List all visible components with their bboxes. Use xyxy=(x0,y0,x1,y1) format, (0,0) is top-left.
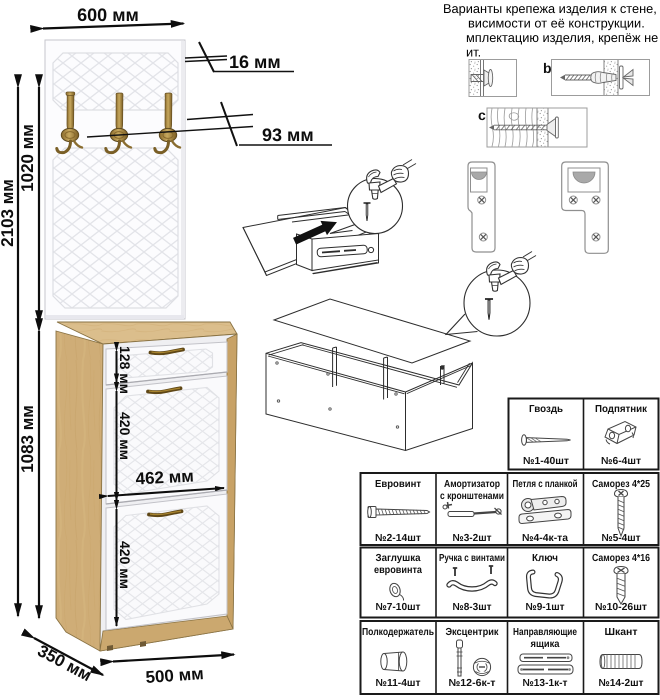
svg-text:420 мм: 420 мм xyxy=(117,541,133,589)
svg-text:Шкант: Шкант xyxy=(605,627,638,638)
svg-text:Ключ: Ключ xyxy=(532,553,558,564)
svg-text:висимости от её конструкции.: висимости от её конструкции. xyxy=(468,16,645,31)
svg-text:Петля с планкой: Петля с планкой xyxy=(513,479,578,490)
svg-text:Варианты крепежа изделия к сте: Варианты крепежа изделия к стене, xyxy=(443,1,657,16)
svg-text:ящика: ящика xyxy=(531,639,560,650)
svg-text:ит.: ит. xyxy=(466,45,481,60)
svg-text:№9-1шт: №9-1шт xyxy=(526,602,565,613)
svg-text:Заглушка: Заглушка xyxy=(376,553,421,564)
svg-text:№5-4шт: №5-4шт xyxy=(602,533,641,544)
svg-text:128 мм: 128 мм xyxy=(117,346,133,394)
svg-text:c: c xyxy=(478,107,486,123)
svg-text:№13-1к-т: №13-1к-т xyxy=(523,678,568,689)
svg-text:мплектацию изделия, крепёж не: мплектацию изделия, крепёж не xyxy=(466,30,658,45)
svg-text:№6-4шт: №6-4шт xyxy=(601,456,641,467)
svg-text:Гвоздь: Гвоздь xyxy=(529,404,563,415)
svg-text:№4-4к-та: №4-4к-та xyxy=(522,533,568,544)
svg-text:№10-26шт: №10-26шт xyxy=(595,602,647,613)
svg-text:420 мм: 420 мм xyxy=(117,412,133,460)
svg-text:с кронштенами: с кронштенами xyxy=(440,491,504,502)
svg-text:№8-3шт: №8-3шт xyxy=(453,602,492,613)
svg-text:Ручка с винтами: Ручка с винтами xyxy=(439,553,505,564)
svg-text:Полкодержатель: Полкодержатель xyxy=(362,627,434,638)
svg-text:b: b xyxy=(543,60,552,76)
svg-text:№3-2шт: №3-2шт xyxy=(453,533,492,544)
svg-text:2103 мм: 2103 мм xyxy=(0,179,17,247)
svg-text:462 мм: 462 мм xyxy=(135,466,194,488)
svg-text:евровинта: евровинта xyxy=(374,565,422,576)
svg-text:Амортизатор: Амортизатор xyxy=(444,479,500,490)
svg-text:№1-40шт: №1-40шт xyxy=(523,456,569,467)
svg-text:Эксцентрик: Эксцентрик xyxy=(446,627,500,638)
svg-text:№2-14шт: №2-14шт xyxy=(375,533,421,544)
svg-text:600 мм: 600 мм xyxy=(77,5,139,25)
svg-text:№7-10шт: №7-10шт xyxy=(376,602,421,613)
svg-text:№12-6к-т: №12-6к-т xyxy=(449,678,496,689)
svg-text:Саморез 4*16: Саморез 4*16 xyxy=(592,553,650,564)
svg-text:№11-4шт: №11-4шт xyxy=(376,678,421,689)
svg-text:500 мм: 500 мм xyxy=(145,664,204,687)
svg-text:1083 мм: 1083 мм xyxy=(18,405,37,473)
svg-text:Евровинт: Евровинт xyxy=(375,479,421,490)
svg-text:Направляющие: Направляющие xyxy=(513,627,577,638)
svg-text:Подпятник: Подпятник xyxy=(595,404,648,415)
svg-text:№14-2шт: №14-2шт xyxy=(599,678,644,689)
svg-text:93 мм: 93 мм xyxy=(262,125,314,145)
svg-text:16 мм: 16 мм xyxy=(229,52,281,72)
svg-text:1020 мм: 1020 мм xyxy=(18,124,37,192)
svg-text:Саморез 4*25: Саморез 4*25 xyxy=(592,479,650,490)
